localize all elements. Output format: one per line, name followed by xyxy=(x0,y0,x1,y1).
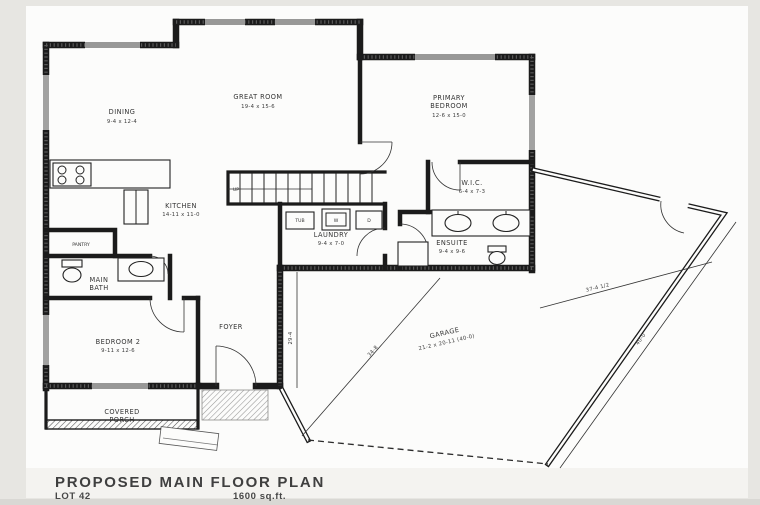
drawing-sheet xyxy=(26,6,748,470)
dim-foyer-wall: 29-4 xyxy=(288,331,294,344)
stairs-up-label: UP xyxy=(233,187,239,193)
wic-dims: 6-4 x 7-3 xyxy=(459,189,486,195)
pantry-label: PANTRY xyxy=(72,242,90,248)
dining-dims: 9-4 x 12-4 xyxy=(107,119,138,125)
bedroom2-label: BEDROOM 2 xyxy=(96,338,141,346)
toilet xyxy=(63,268,81,282)
laundry-label: LAUNDRY xyxy=(314,231,349,239)
great-room-label: GREAT ROOM xyxy=(233,93,282,101)
main-bath-label-1: MAIN xyxy=(90,276,109,284)
shower xyxy=(398,242,428,266)
ensuite-label: ENSUITE xyxy=(436,239,467,247)
porch-label-1: COVERED xyxy=(104,408,139,416)
floor-plan-page: UP TUB xyxy=(0,0,760,505)
ensuite-toilet xyxy=(489,252,505,265)
ensuite-sink-right xyxy=(493,215,519,232)
primary-bedroom-label-1: PRIMARY xyxy=(433,94,466,102)
plan-area: 1600 sq.ft. xyxy=(233,491,286,502)
dryer-label: D xyxy=(367,218,371,224)
porch-label-2: PORCH xyxy=(109,416,134,424)
kitchen-label: KITCHEN xyxy=(165,202,197,210)
kitchen-dims: 14-11 x 11-0 xyxy=(162,212,200,218)
foyer-label: FOYER xyxy=(219,323,243,331)
washer-label: W xyxy=(334,218,339,224)
bottom-edge xyxy=(0,499,760,505)
dining-label: DINING xyxy=(109,108,136,116)
main-bath-label-2: BATH xyxy=(89,284,108,292)
lot-number: LOT 42 xyxy=(55,491,91,502)
ensuite-dims: 9-4 x 9-6 xyxy=(439,249,466,255)
ensuite-sink-left xyxy=(445,215,471,232)
floor-plan-drawing: UP TUB xyxy=(0,0,760,505)
great-room-dims: 19-4 x 15-6 xyxy=(241,104,275,110)
laundry-dims: 9-4 x 7-0 xyxy=(318,241,345,247)
bedroom2-dims: 9-11 x 12-6 xyxy=(101,348,135,354)
tub-label: TUB xyxy=(294,218,304,224)
primary-bedroom-dims: 12-6 x 15-0 xyxy=(432,113,466,119)
primary-bedroom-label-2: BEDROOM xyxy=(430,102,468,110)
plan-title: PROPOSED MAIN FLOOR PLAN xyxy=(55,474,325,491)
laundry-appliances: TUB W D xyxy=(286,209,382,230)
wic-label: W.I.C. xyxy=(461,179,482,187)
bath-sink xyxy=(129,262,153,277)
toilet-tank xyxy=(62,260,82,267)
